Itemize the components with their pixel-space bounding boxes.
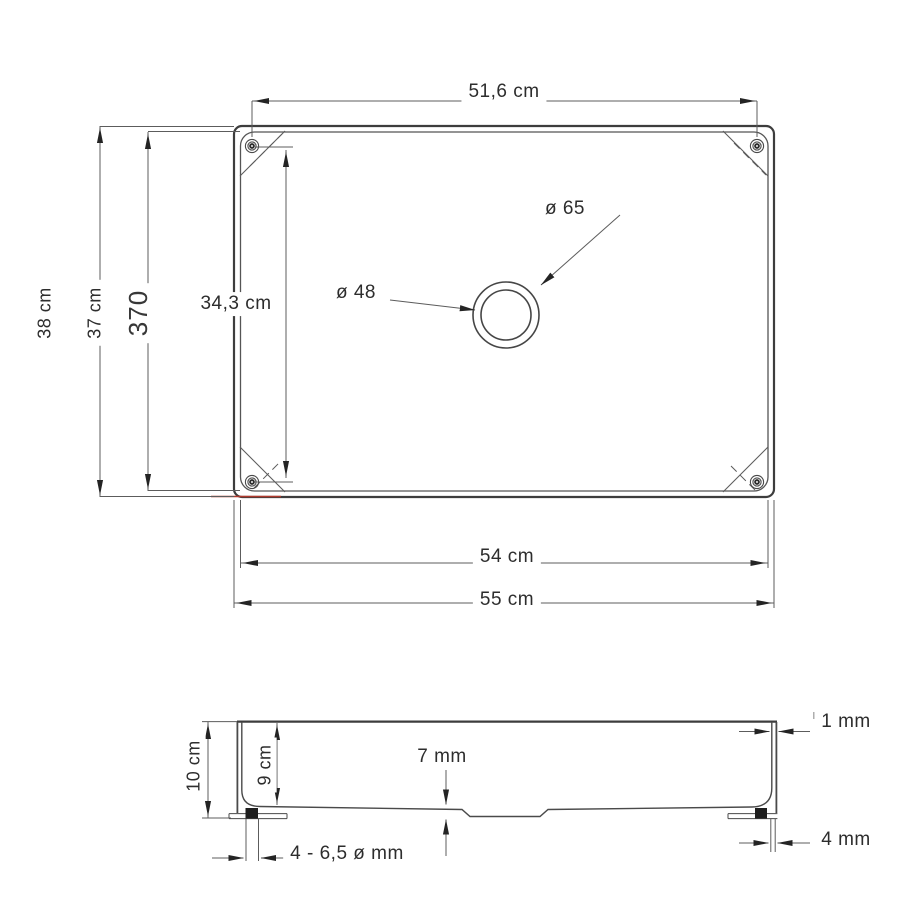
dim-label-outer-height: 38 cm [34,280,57,346]
dim-label-inner-depth: 9 cm [254,737,277,792]
side-view [202,712,814,861]
technical-drawing-page: 51,6 cm 38 cm 37 cm 370 34,3 cm ø 65 ø 4… [0,0,900,900]
dim-label-outer-width: 55 cm [473,588,541,612]
dim-label-screw-span-height: 34,3 cm [193,292,278,316]
dim-label-rim-height-mm: 370 [123,283,155,343]
top-view-dimension-lines [100,101,774,608]
dim-label-recess-depth: 7 mm [410,745,474,769]
corner-screw-icon [245,139,258,152]
dim-label-rim-width: 54 cm [473,545,541,569]
dim-label-drain-outer-diameter: ø 65 [541,197,589,221]
corner-screw-icon [750,475,763,488]
basin-outer-outline [234,126,774,497]
mounting-block-left [246,808,259,819]
dim-label-flange-thickness: 4 mm [814,828,878,852]
drain-outer-leader [541,215,620,285]
drain-hole [473,282,539,348]
dim-label-mounting-hole-diameter: 4 - 6,5 ø mm [283,842,411,866]
drain-inner-leader [390,300,475,310]
basin-rim-outline [241,132,769,491]
basin-cavity-profile [242,722,772,817]
dim-label-wall-thickness: 1 mm [814,710,878,734]
screw-centerlines [250,134,766,493]
side-view-dimension-lines [202,712,814,858]
dim-label-rim-height: 37 cm [84,280,107,346]
corner-screw-icon [750,139,763,152]
mounting-flange-right [728,814,777,819]
dim-label-drain-inner-diameter: ø 48 [332,281,380,305]
dim-label-outer-depth: 10 cm [183,733,206,799]
dim-label-screw-span-width: 51,6 cm [461,80,546,104]
corner-gusset-lines [240,131,768,492]
top-view [100,101,774,608]
mounting-block-right [755,808,767,819]
